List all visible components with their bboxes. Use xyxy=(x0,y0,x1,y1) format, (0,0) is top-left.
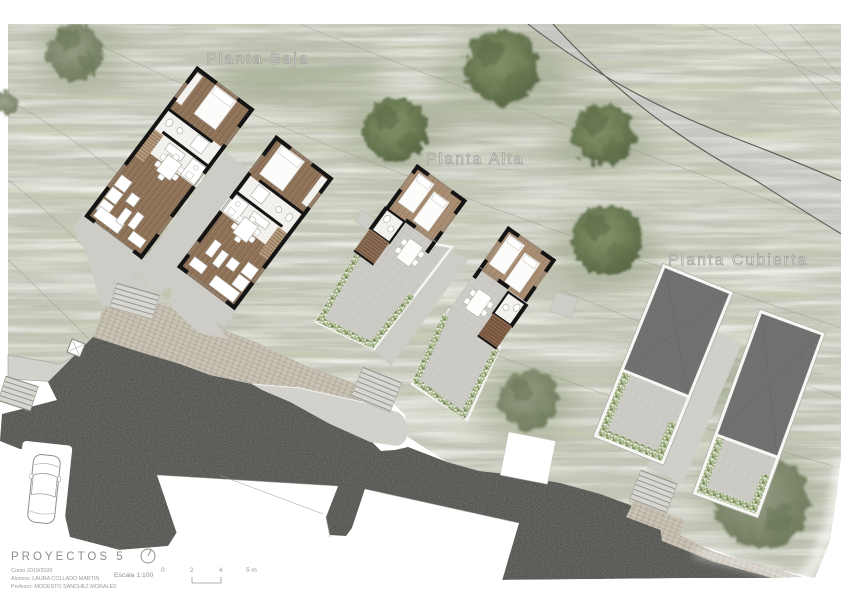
svg-text:Planta Baja: Planta Baja xyxy=(206,51,310,68)
svg-text:5 m: 5 m xyxy=(246,567,257,574)
svg-text:Escala 1:100: Escala 1:100 xyxy=(114,572,154,579)
svg-text:PROYECTOS 5: PROYECTOS 5 xyxy=(11,551,126,563)
svg-text:Curso 2019/2020: Curso 2019/2020 xyxy=(11,568,52,574)
svg-text:4: 4 xyxy=(219,567,223,574)
svg-text:0: 0 xyxy=(161,567,165,574)
svg-text:Planta Alta: Planta Alta xyxy=(426,151,525,168)
svg-text:Profesor: MODESTO SANCHEZ MORA: Profesor: MODESTO SANCHEZ MORALES xyxy=(11,584,117,590)
svg-text:Planta Cubierta: Planta Cubierta xyxy=(668,252,808,269)
svg-text:2: 2 xyxy=(190,567,194,574)
svg-text:Alumna: LAURA COLLADO MARTIN: Alumna: LAURA COLLADO MARTIN xyxy=(11,576,99,582)
